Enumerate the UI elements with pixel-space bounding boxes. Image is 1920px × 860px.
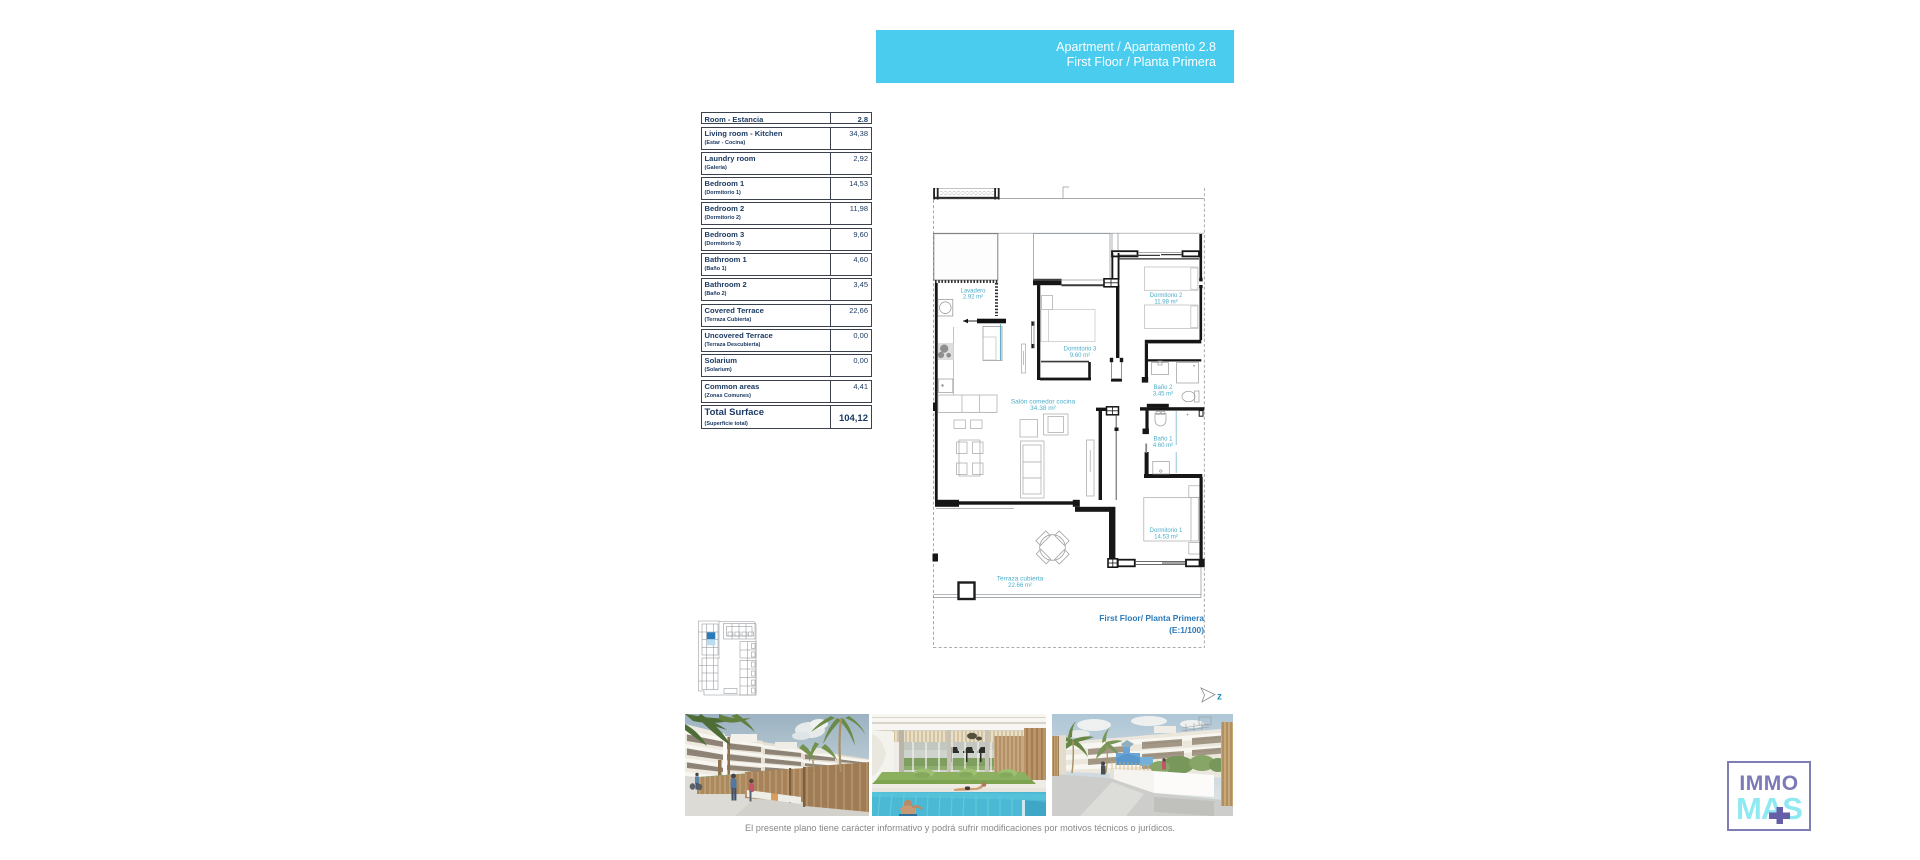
svg-text:Terraza cubierta: Terraza cubierta <box>997 576 1044 583</box>
svg-text:Dormitorio 1: Dormitorio 1 <box>1150 528 1183 534</box>
svg-text:Baño 2: Baño 2 <box>1153 385 1173 391</box>
svg-text:Lavadero: Lavadero <box>960 288 986 294</box>
svg-text:14.53 m²: 14.53 m² <box>1154 535 1178 541</box>
svg-text:4.60 m²: 4.60 m² <box>1153 443 1173 449</box>
svg-text:22.66 m²: 22.66 m² <box>1008 583 1032 589</box>
svg-text:3.45 m²: 3.45 m² <box>1153 392 1173 398</box>
svg-text:Dormitorio 2: Dormitorio 2 <box>1150 293 1183 299</box>
svg-text:11.98 m²: 11.98 m² <box>1154 300 1177 306</box>
svg-text:9.60 m²: 9.60 m² <box>1070 353 1090 359</box>
svg-text:Baño 1: Baño 1 <box>1153 437 1173 443</box>
svg-text:2.92 m²: 2.92 m² <box>963 295 983 301</box>
svg-text:Dormitorio 3: Dormitorio 3 <box>1064 347 1097 353</box>
svg-text:34.38 m²: 34.38 m² <box>1030 405 1056 412</box>
svg-text:z: z <box>1217 692 1222 703</box>
